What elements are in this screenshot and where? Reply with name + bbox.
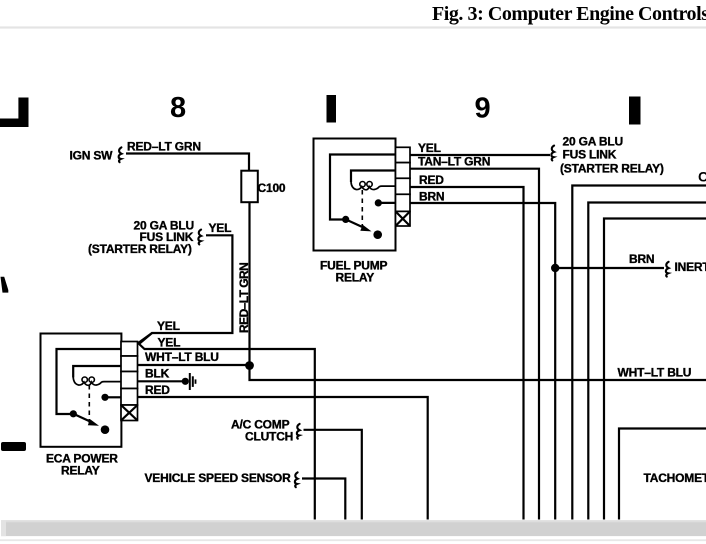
svg-text:8: 8: [170, 92, 186, 124]
svg-text:WHT–LT BLU: WHT–LT BLU: [145, 350, 219, 364]
svg-text:RED: RED: [419, 173, 444, 187]
svg-text:C100: C100: [258, 181, 286, 195]
svg-text:Fig. 3: Computer Engine Contro: Fig. 3: Computer Engine Controls: [432, 3, 706, 25]
svg-text:TACHOMETER: TACHOMETER: [644, 471, 706, 485]
svg-text:C1: C1: [698, 168, 706, 184]
svg-text:BRN: BRN: [419, 190, 444, 204]
svg-text:(STARTER RELAY): (STARTER RELAY): [88, 242, 192, 256]
svg-text:RED: RED: [145, 383, 170, 397]
svg-text:BRN: BRN: [629, 252, 654, 266]
svg-text:YEL: YEL: [158, 336, 181, 350]
svg-text:WHT–LT BLU: WHT–LT BLU: [618, 366, 692, 380]
svg-text:FUS LINK: FUS LINK: [563, 148, 617, 162]
svg-text:IGN SW: IGN SW: [70, 149, 114, 163]
svg-text:CLUTCH: CLUTCH: [245, 430, 293, 444]
svg-text:INERTIA SW: INERTIA SW: [675, 260, 706, 274]
svg-text:RELAY: RELAY: [336, 271, 375, 285]
svg-text:RELAY: RELAY: [61, 464, 100, 478]
svg-text:BLK: BLK: [145, 367, 170, 381]
svg-text:RED–LT GRN: RED–LT GRN: [237, 263, 251, 333]
svg-text:YEL: YEL: [418, 141, 441, 155]
svg-text:(STARTER RELAY): (STARTER RELAY): [560, 162, 664, 176]
svg-text:TAN–LT GRN: TAN–LT GRN: [418, 155, 490, 169]
svg-text:YEL: YEL: [157, 319, 180, 333]
svg-text:VEHICLE SPEED SENSOR: VEHICLE SPEED SENSOR: [145, 471, 292, 485]
svg-text:YEL: YEL: [209, 221, 232, 235]
svg-text:9: 9: [475, 93, 491, 125]
svg-text:20 GA BLU: 20 GA BLU: [563, 135, 623, 149]
svg-text:RED–LT GRN: RED–LT GRN: [127, 140, 201, 154]
